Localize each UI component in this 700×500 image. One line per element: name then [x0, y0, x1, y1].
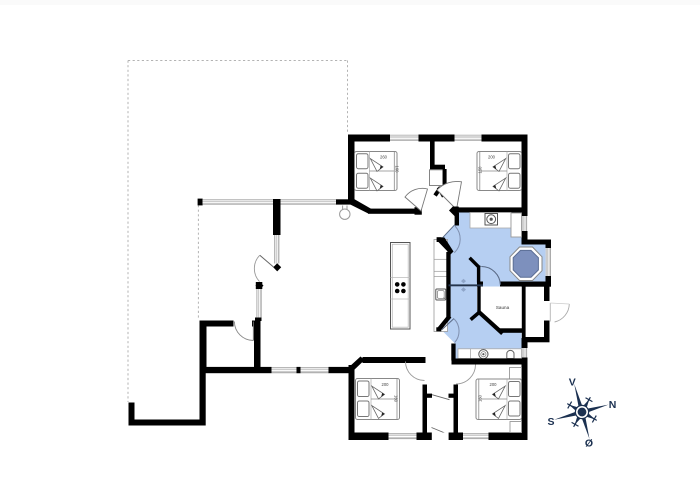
svg-text:160: 160 — [395, 166, 400, 174]
svg-text:S: S — [547, 416, 554, 428]
svg-text:Sauna: Sauna — [496, 305, 510, 310]
svg-text:200: 200 — [382, 382, 390, 387]
svg-text:160: 160 — [394, 395, 399, 403]
svg-text:150: 150 — [478, 166, 483, 174]
svg-text:200: 200 — [490, 382, 498, 387]
svg-text:Ø: Ø — [585, 438, 593, 450]
svg-text:V: V — [569, 377, 576, 389]
svg-text:200: 200 — [488, 154, 496, 159]
svg-text:160: 160 — [478, 394, 483, 402]
svg-text:N: N — [609, 399, 617, 411]
svg-text:260: 260 — [380, 154, 388, 159]
